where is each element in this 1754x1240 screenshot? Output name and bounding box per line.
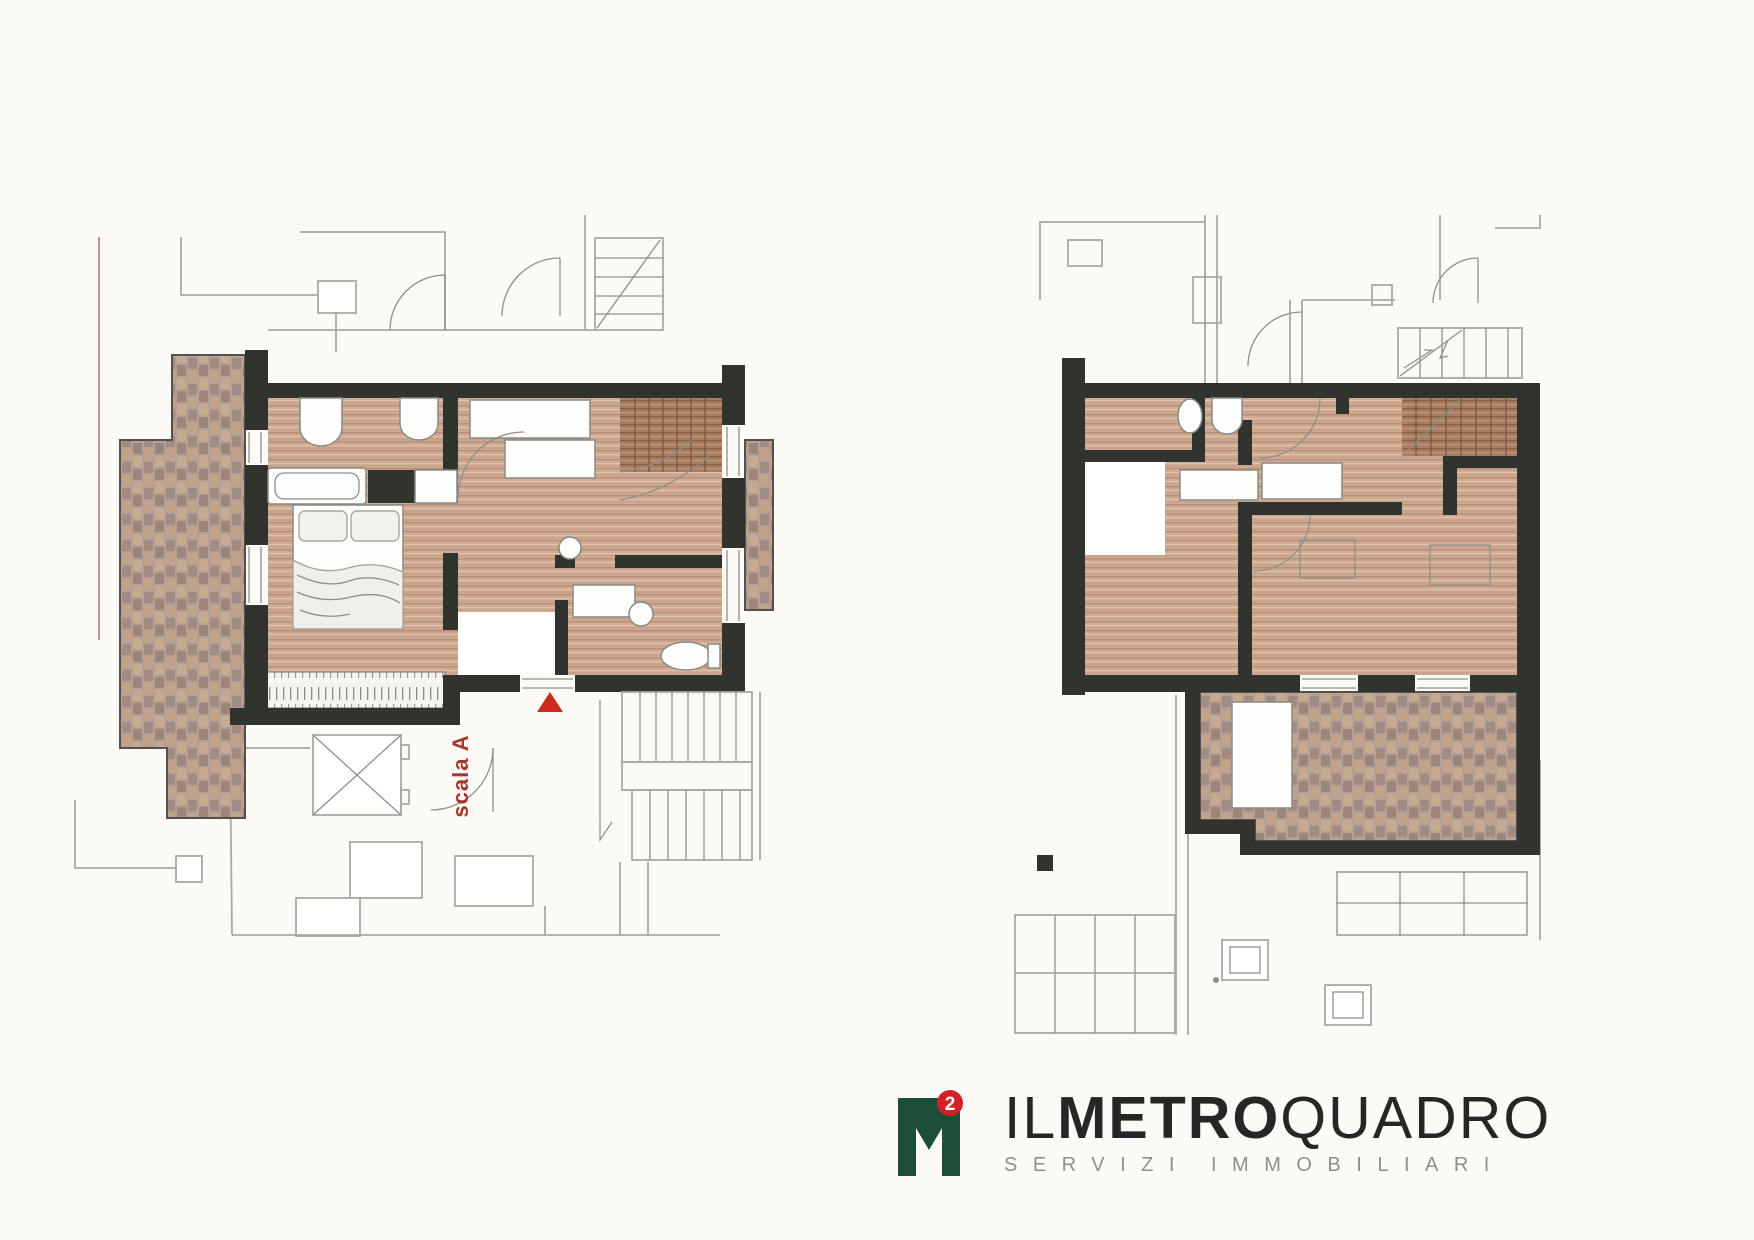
bidet-icon [1212, 398, 1242, 434]
floor-plan-left: scala A [75, 215, 773, 936]
entrance-marker-triangle-icon [537, 692, 563, 712]
stairwell-scala-A [600, 692, 760, 860]
logo-superscript: 2 [945, 1094, 956, 1115]
skylight-icon [1222, 940, 1268, 980]
logo-word-metro: METRO [1057, 1085, 1280, 1151]
terrace-skylight-box [1232, 702, 1292, 808]
elevator [313, 735, 409, 815]
internal-stair-upper [1402, 398, 1517, 456]
bidet-icon [400, 398, 438, 440]
bedroom-window-sill [245, 672, 445, 708]
left-balcony-terrace [120, 355, 245, 818]
logo-wordmark: ILMETROQUADRO [1004, 1090, 1551, 1146]
table [505, 440, 595, 478]
logo-word-il: IL [1004, 1085, 1057, 1151]
closet-niche [1085, 455, 1165, 555]
logo-mark: 2 [898, 1090, 964, 1182]
entry-hall-floor [458, 612, 555, 675]
sink-icon [300, 398, 342, 446]
bath-counter [470, 400, 590, 438]
shower-icon [415, 470, 457, 503]
desk [573, 585, 635, 617]
wc-sink-icon [629, 602, 653, 626]
left-side-terrace [745, 440, 773, 610]
pillow-icon [351, 511, 399, 541]
logo-text: ILMETROQUADRO SERVIZI IMMOBILIARI [1004, 1090, 1551, 1177]
logo-tagline: SERVIZI IMMOBILIARI [1004, 1154, 1551, 1177]
stool [559, 537, 581, 559]
stair-label: scala A [448, 734, 473, 817]
toilet-icon [1178, 399, 1202, 433]
logo-word-quadro: QUADRO [1280, 1085, 1551, 1151]
agency-logo: 2 ILMETROQUADRO SERVIZI IMMOBILIARI [898, 1090, 1546, 1190]
floor-plan-sheet: scala A [0, 0, 1754, 1240]
floor-plan-right [1015, 215, 1540, 1035]
pillow-icon [299, 511, 347, 541]
toilet-icon [661, 642, 711, 670]
double-bed [293, 505, 403, 629]
skylight-icon [1325, 985, 1371, 1025]
